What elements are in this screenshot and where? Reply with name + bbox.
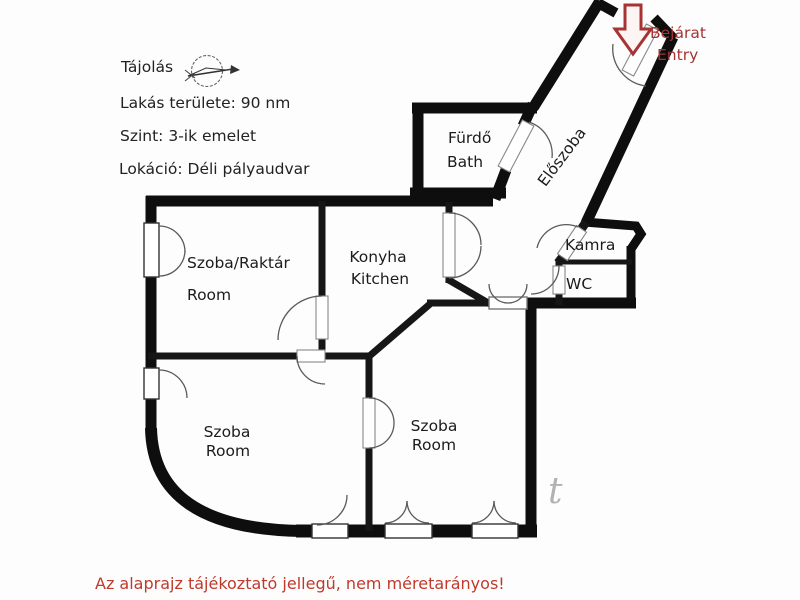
wall-corridor-left (533, 1, 600, 108)
orientation-label: Tájolás (120, 58, 173, 76)
room-label-left-en: Room (206, 442, 250, 460)
swing-arc (159, 251, 185, 276)
room-label-bath-en: Bath (447, 153, 483, 171)
room-label-kitchen-en: Kitchen (351, 270, 409, 288)
swing-arc (278, 296, 322, 340)
window (385, 524, 432, 538)
swing-arc (159, 370, 187, 398)
room-label-right-en: Room (412, 436, 456, 454)
window (144, 223, 159, 277)
disclaimer-text: Az alaprajz tájékoztató jellegű, nem mér… (95, 574, 505, 593)
swing-arc (494, 501, 516, 523)
floorplan-page: t (0, 0, 800, 600)
door-leaf (443, 213, 455, 277)
door-leaf (363, 398, 375, 448)
compass-icon (185, 56, 240, 87)
floor-label: Szint: 3-ik emelet (120, 127, 256, 145)
door-leaf (297, 350, 325, 362)
watermark-letter: t (548, 471, 563, 512)
location-label: Lokáció: Déli pályaudvar (119, 160, 310, 178)
area-label: Lakás területe: 90 nm (120, 94, 290, 112)
swing-arc (159, 226, 185, 252)
swing-arc (385, 501, 407, 523)
door-leaf (316, 296, 328, 339)
entry-label-en: Entry (657, 46, 698, 64)
swing-arc (407, 501, 429, 523)
room-label-right-hu: Szoba (411, 417, 458, 435)
window (144, 368, 159, 399)
room-label-bath-hu: Fürdő (448, 129, 491, 147)
room-label-left-hu: Szoba (204, 423, 251, 441)
wall-kitchen-chamfer (366, 304, 430, 359)
window (472, 524, 518, 538)
window (312, 524, 348, 538)
room-label-storage-hu: Szoba/Raktár (187, 254, 290, 272)
room-label-storage-en: Room (187, 286, 231, 304)
door-leaf (498, 120, 534, 172)
swing-arc (317, 495, 347, 525)
room-label-wc: WC (566, 275, 592, 293)
room-label-pantry: Kamra (565, 236, 615, 254)
room-label-kitchen-hu: Konyha (349, 248, 406, 266)
floorplan-svg: t (0, 0, 800, 600)
entry-label-hu: Bejárat (650, 24, 706, 42)
room-label-hallway: Előszoba (534, 124, 590, 190)
swing-arc (472, 501, 494, 523)
wall-entry-cap-left (598, 3, 616, 13)
